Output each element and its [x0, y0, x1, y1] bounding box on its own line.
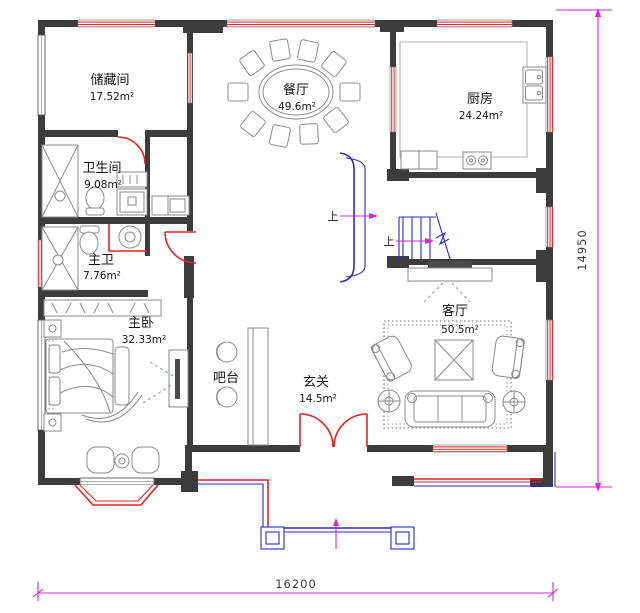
plant-stand-left [378, 390, 400, 412]
bathroom-label: 卫生间 [82, 161, 121, 176]
dining-area: 49.6m² [278, 101, 316, 113]
storage-label: 储藏间 [90, 73, 129, 88]
window-right-living [546, 320, 553, 380]
up-label-right: 上 [384, 235, 395, 248]
bathroom-area: 9.08m² [84, 179, 122, 191]
sofa [405, 391, 495, 427]
window-bottom-living [433, 445, 507, 452]
up-label-left: 上 [328, 210, 339, 223]
masterbath-area: 7.76m² [83, 270, 121, 282]
bedside-bench [115, 347, 129, 405]
kitchen-area: 24.24m² [459, 110, 504, 122]
bedroom-area: 32.33m² [122, 334, 167, 346]
masterbath-label: 主卫 [88, 253, 114, 268]
bar-label: 吧台 [213, 371, 239, 386]
bar-stool-1 [217, 342, 237, 362]
window-top-storage [78, 20, 155, 27]
kitchen-sink [523, 67, 546, 103]
window-left-storage [38, 35, 45, 115]
window-right-stair [546, 207, 553, 247]
kitchen-stove [463, 152, 491, 169]
dimension-height-text: 14950 [575, 229, 589, 271]
storage-area: 17.52m² [90, 91, 135, 103]
bar-counter [248, 328, 268, 445]
bed [46, 339, 113, 413]
window-right-kitchen [546, 57, 553, 132]
bar-stool-2 [217, 387, 237, 407]
window-bottom-bedroom [80, 478, 154, 485]
entry-area: 14.5m² [299, 393, 337, 405]
kitchen-label: 厨房 [467, 91, 493, 107]
bedroom-tv [175, 359, 180, 399]
bathroom-shower [42, 145, 78, 217]
masterbath-toilet [80, 226, 99, 254]
bedroom-tv-cabinet [169, 350, 188, 407]
hall-nook-counter [152, 196, 189, 215]
floor-plan: 储藏间 17.52m² 餐厅 49.6m² [0, 0, 640, 613]
plant-stand-right [503, 391, 525, 413]
storage-dining-opening [188, 53, 192, 103]
entry-label: 玄关 [303, 375, 329, 390]
masterbath-shower [42, 227, 78, 290]
living-area: 50.5m² [441, 324, 479, 336]
living-tv [428, 261, 472, 268]
wardrobe [44, 300, 161, 316]
living-label: 客厅 [442, 303, 468, 319]
window-top-kitchen [437, 20, 512, 27]
kitchen-sliding-door [390, 67, 396, 132]
bathroom-washer [117, 189, 147, 215]
kitchen-cabinet [401, 151, 437, 169]
bedroom-label: 主卧 [128, 316, 154, 331]
window-top-dining [227, 20, 375, 27]
masterbath-sink [119, 226, 141, 248]
dimension-width-text: 16200 [275, 577, 317, 591]
coffee-table [435, 340, 473, 380]
nightstand-top [44, 320, 61, 337]
bedroom-side-table [115, 454, 129, 468]
armchair-right [491, 335, 524, 379]
dining-label: 餐厅 [283, 82, 309, 98]
nightstand-bottom [44, 414, 61, 431]
bathroom-toilet [86, 187, 104, 215]
